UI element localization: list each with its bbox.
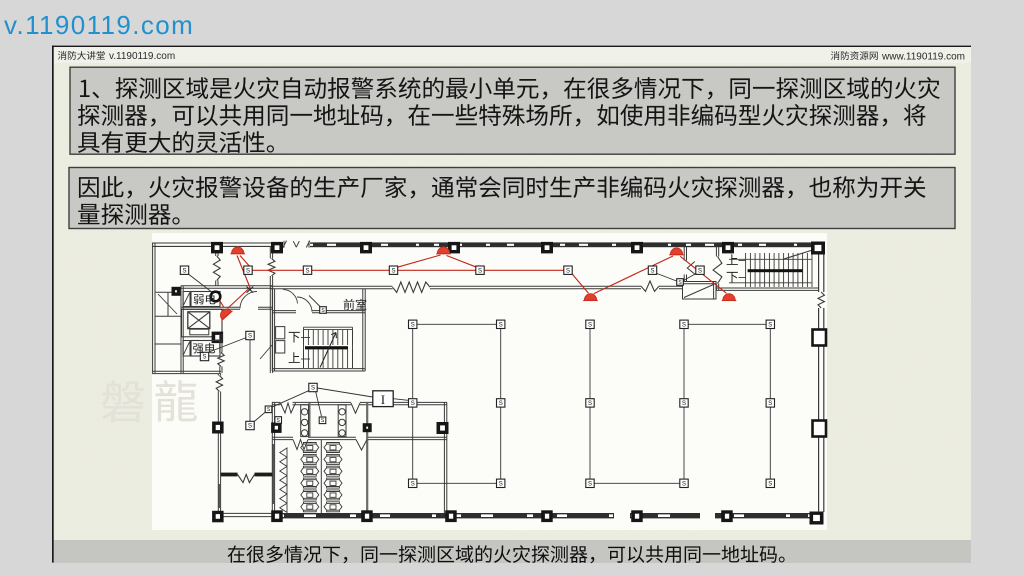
svg-text:S: S [411, 482, 415, 488]
svg-text:v.1190119.com: v.1190119.com [109, 51, 175, 62]
svg-text:www.1190119.com: www.1190119.com [881, 51, 965, 62]
svg-text:S: S [411, 401, 415, 407]
svg-text:S: S [588, 401, 592, 407]
svg-text:S: S [311, 386, 315, 392]
svg-text:S: S [182, 268, 186, 274]
svg-text:S: S [768, 401, 772, 407]
svg-text:S: S [202, 355, 206, 361]
svg-text:S: S [682, 482, 686, 488]
svg-text:S: S [768, 482, 772, 488]
svg-text:S: S [478, 268, 482, 274]
svg-text:S: S [588, 482, 592, 488]
svg-text:S: S [698, 268, 702, 274]
svg-text:S: S [499, 482, 503, 488]
svg-text:S: S [499, 401, 503, 407]
svg-text:S: S [499, 323, 503, 329]
svg-text:S: S [682, 323, 686, 329]
svg-text:S: S [248, 424, 252, 430]
svg-text:S: S [246, 268, 250, 274]
svg-text:S: S [682, 401, 686, 407]
svg-text:I: I [381, 393, 385, 407]
svg-text:S: S [305, 268, 309, 274]
svg-text:S: S [768, 323, 772, 329]
svg-text:S: S [566, 268, 570, 274]
svg-text:S: S [411, 323, 415, 329]
svg-text:S: S [588, 323, 592, 329]
svg-text:S: S [391, 268, 395, 274]
svg-text:v.1190119.com: v.1190119.com [4, 10, 194, 40]
svg-text:S: S [650, 268, 654, 274]
svg-text:S: S [248, 334, 252, 340]
